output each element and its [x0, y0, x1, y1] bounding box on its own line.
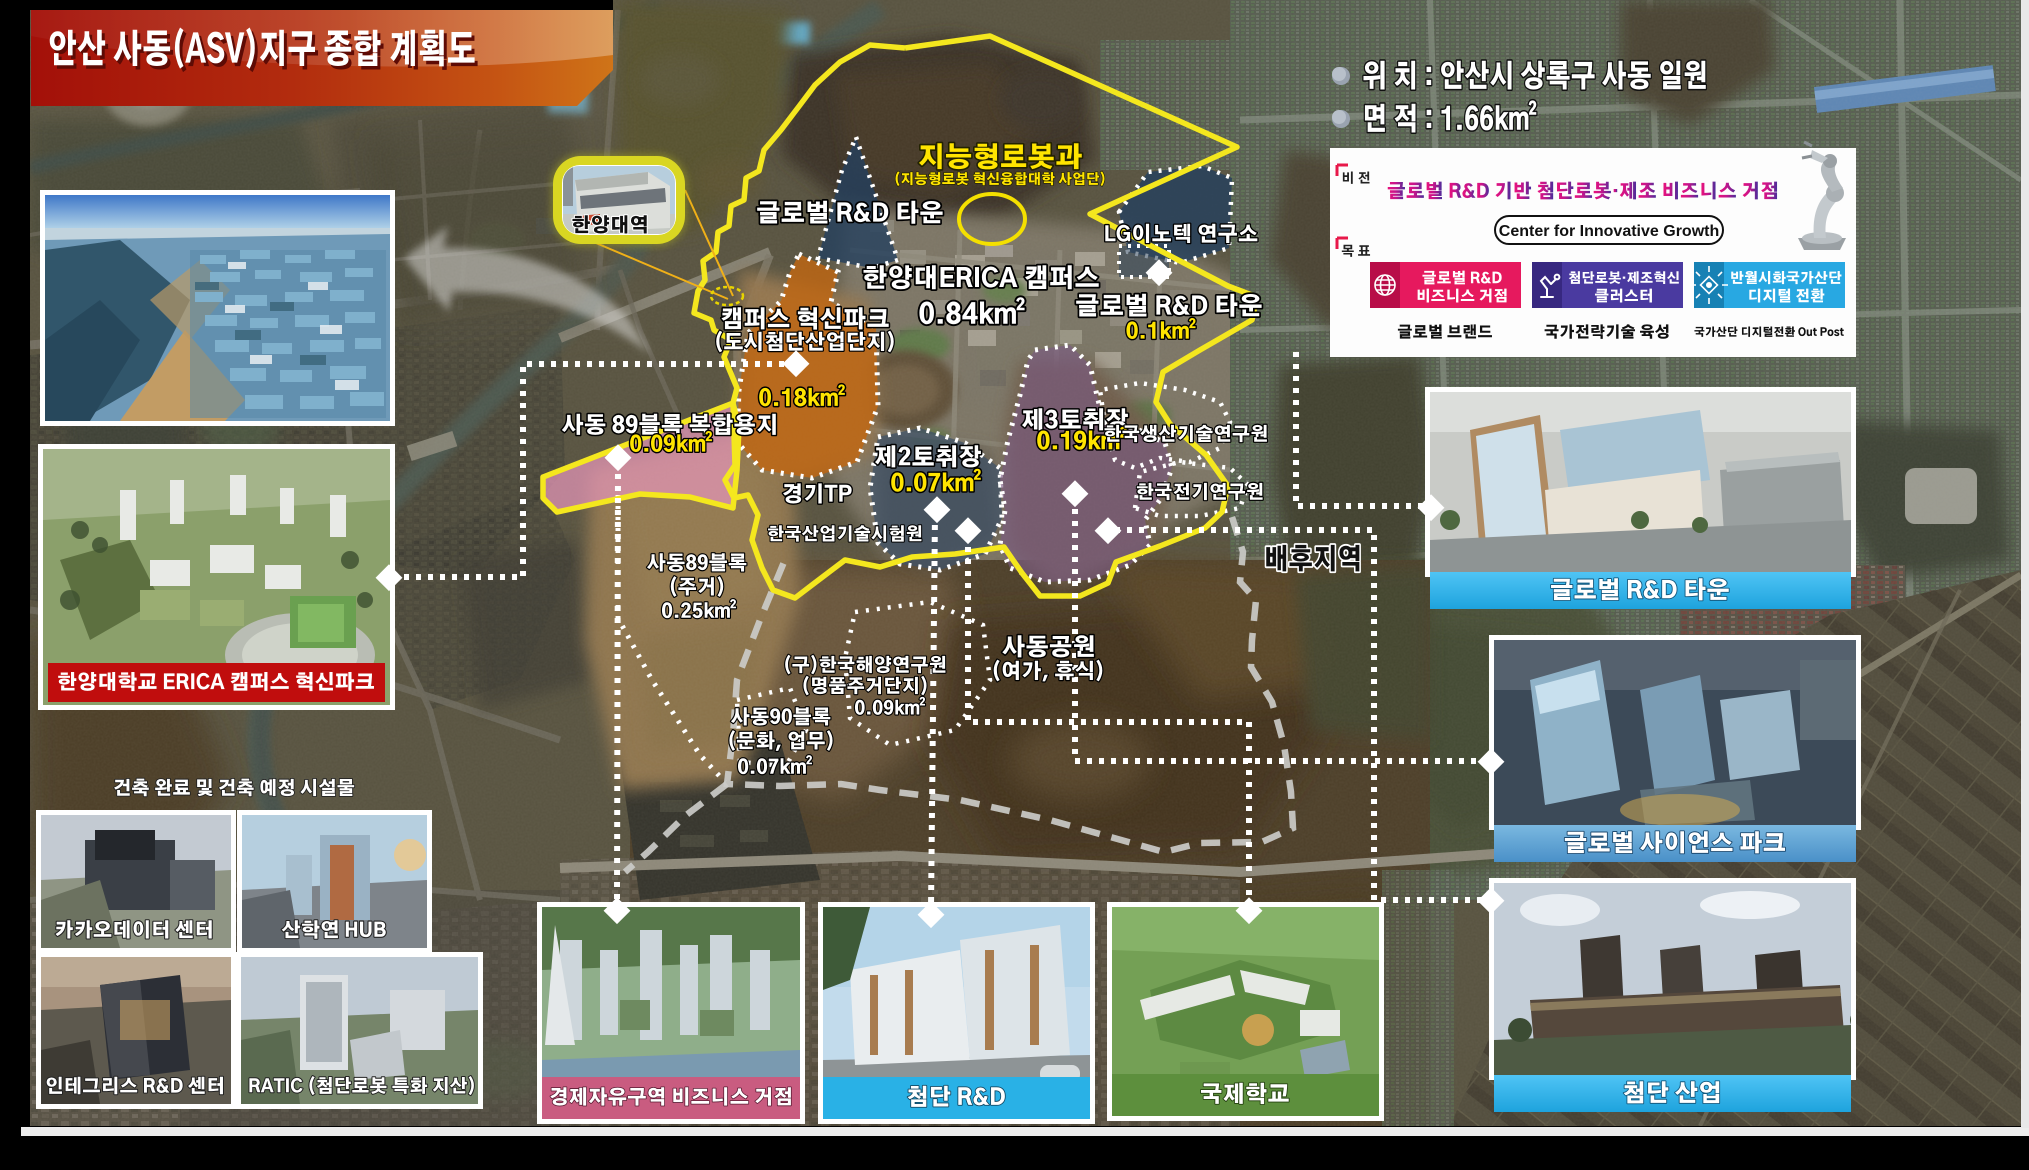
svg-text:Center for Innovative Growth: Center for Innovative Growth: [1499, 223, 1719, 240]
